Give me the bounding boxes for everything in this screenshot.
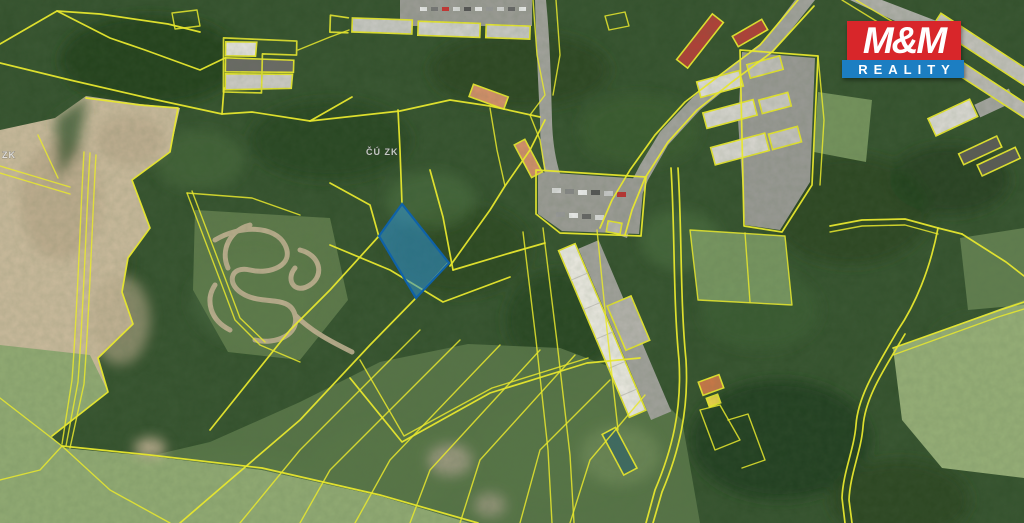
logo-text-mm: M&M	[863, 20, 949, 61]
aerial-basemap: ČÚ ZK ZK M&M REALITY	[0, 0, 1024, 523]
logo-text-reality: REALITY	[858, 62, 956, 77]
cuzk-watermark: ČÚ ZK	[366, 146, 399, 157]
map-canvas[interactable]: ČÚ ZK ZK M&M REALITY	[0, 0, 1024, 523]
mm-reality-logo: M&M REALITY	[842, 20, 964, 78]
photo-grain	[0, 0, 1024, 523]
cuzk-watermark-left: ZK	[2, 150, 16, 160]
